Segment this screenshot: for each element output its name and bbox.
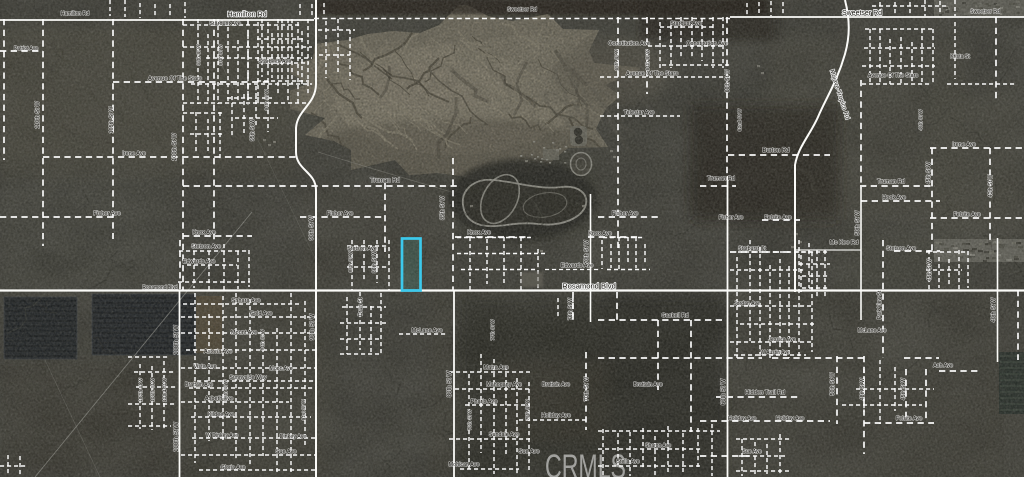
svg-text:Sue Ave: Sue Ave — [519, 449, 540, 455]
svg-text:40th St W: 40th St W — [988, 175, 994, 198]
svg-text:Hamilton Rd: Hamilton Rd — [61, 11, 90, 17]
svg-text:Sharon Ave: Sharon Ave — [645, 443, 671, 449]
svg-text:Knox Ave: Knox Ave — [192, 230, 216, 236]
svg-text:Sahara Ave: Sahara Ave — [232, 298, 261, 304]
svg-text:105th St W: 105th St W — [150, 378, 156, 402]
svg-text:48th St W: 48th St W — [860, 378, 866, 400]
svg-text:107th St W: 107th St W — [138, 378, 144, 402]
svg-text:Rosamond Blvd: Rosamond Blvd — [142, 285, 178, 291]
svg-text:W Austin Ave: W Austin Ave — [760, 350, 790, 356]
svg-text:Astoria Ave: Astoria Ave — [204, 349, 232, 355]
svg-text:65th St W: 65th St W — [614, 49, 620, 71]
svg-text:Sue Ave: Sue Ave — [742, 449, 761, 455]
svg-text:Krista St: Krista St — [950, 54, 970, 60]
svg-text:77th St W: 77th St W — [490, 319, 496, 341]
svg-text:Hamilton Rd: Hamilton Rd — [227, 10, 267, 19]
svg-text:45th St W: 45th St W — [901, 378, 907, 400]
svg-text:Stardust Ave: Stardust Ave — [670, 21, 702, 27]
svg-text:60th St W: 60th St W — [725, 70, 731, 93]
svg-text:Park View St: Park View St — [877, 290, 883, 319]
svg-text:Patriot Ave: Patriot Ave — [14, 46, 38, 52]
svg-text:Sunnyside Way: Sunnyside Way — [229, 375, 267, 381]
svg-text:46th St W: 46th St W — [918, 109, 924, 131]
svg-text:Gold Ave: Gold Ave — [250, 311, 273, 317]
svg-text:91st St W: 91st St W — [301, 399, 307, 420]
svg-text:Irene Ave: Irene Ave — [122, 151, 146, 157]
svg-text:Brattain Ave: Brattain Ave — [634, 382, 663, 388]
svg-text:Truman Rd: Truman Rd — [877, 179, 905, 185]
svg-text:McLane Ave: McLane Ave — [412, 328, 443, 334]
svg-text:Sweetser Rd: Sweetser Rd — [842, 10, 882, 17]
svg-text:Truman Rd: Truman Rd — [707, 176, 735, 182]
svg-text:Rosamond Blvd: Rosamond Blvd — [562, 282, 616, 291]
svg-text:100th St W: 100th St W — [172, 132, 178, 160]
svg-text:Matra Ave: Matra Ave — [483, 365, 508, 371]
svg-text:W Dinkey Ave: W Dinkey Ave — [206, 433, 238, 439]
svg-text:86th St W: 86th St W — [372, 251, 378, 273]
svg-text:110th St W: 110th St W — [35, 101, 41, 129]
svg-text:50th St W: 50th St W — [855, 210, 861, 235]
svg-text:Knox Ave: Knox Ave — [588, 231, 612, 237]
svg-text:Sundale Ave: Sundale Ave — [489, 432, 519, 438]
svg-text:Avenue Of The Stars: Avenue Of The Stars — [148, 76, 202, 82]
svg-text:Kildee Ave: Kildee Ave — [208, 412, 234, 418]
svg-text:Telestar Ave: Telestar Ave — [624, 110, 654, 116]
svg-text:Starburst Ct: Starburst Ct — [738, 246, 766, 252]
svg-text:Sweetser Rd: Sweetser Rd — [507, 7, 537, 13]
svg-text:62nd St W: 62nd St W — [737, 108, 743, 131]
svg-text:90th St W: 90th St W — [309, 215, 315, 240]
svg-text:64th St W: 64th St W — [645, 49, 651, 71]
svg-text:Felsite Ave: Felsite Ave — [953, 212, 980, 218]
svg-text:Moon Ave: Moon Ave — [270, 366, 293, 372]
svg-text:Sue Ave: Sue Ave — [276, 449, 297, 455]
svg-text:Avenue Of The Stars: Avenue Of The Stars — [626, 71, 678, 77]
svg-text:Felsite Ave: Felsite Ave — [764, 215, 791, 221]
svg-text:Holiday Ave: Holiday Ave — [776, 416, 804, 422]
svg-text:McLane Ave: McLane Ave — [858, 328, 887, 334]
svg-text:70th St W: 70th St W — [584, 376, 590, 401]
svg-text:Burton Rd: Burton Rd — [762, 148, 789, 154]
svg-text:Fisher Ave: Fisher Ave — [93, 211, 120, 217]
svg-text:Fisher Ave: Fisher Ave — [612, 211, 638, 217]
svg-text:100th St W: 100th St W — [174, 422, 180, 452]
svg-text:Pharis Ave: Pharis Ave — [471, 399, 498, 405]
svg-text:98th St W: 98th St W — [196, 44, 202, 66]
svg-text:50th St W: 50th St W — [830, 373, 836, 396]
svg-text:60th St W: 60th St W — [721, 378, 727, 405]
svg-text:79th St W: 79th St W — [467, 409, 473, 431]
svg-text:Constitution Ave: Constitution Ave — [686, 41, 728, 47]
svg-text:Ash Ave: Ash Ave — [933, 363, 953, 369]
svg-text:Mount Ave: Mount Ave — [231, 330, 257, 336]
svg-text:103rd St W: 103rd St W — [162, 378, 168, 402]
svg-text:CRMLS: CRMLS — [545, 448, 626, 477]
svg-text:75th St W: 75th St W — [525, 399, 531, 421]
svg-text:95th St W: 95th St W — [250, 119, 256, 141]
svg-text:Edwards Ave: Edwards Ave — [183, 259, 216, 265]
svg-text:Truman Rd: Truman Rd — [370, 178, 400, 184]
svg-text:Holiday Ave: Holiday Ave — [541, 413, 570, 419]
svg-text:Brattain Ave: Brattain Ave — [542, 382, 570, 388]
svg-text:Stardust Ave: Stardust Ave — [209, 21, 241, 27]
svg-text:Starbeck Ave: Starbeck Ave — [259, 59, 292, 65]
svg-text:45th St W: 45th St W — [927, 259, 933, 281]
svg-text:88th St W: 88th St W — [348, 251, 354, 273]
svg-text:Sweetser Rd: Sweetser Rd — [970, 9, 1000, 15]
svg-text:Irene Ave: Irene Ave — [952, 142, 976, 148]
svg-text:100th St W: 100th St W — [174, 325, 180, 355]
svg-text:Holiday Ave: Holiday Ave — [728, 416, 756, 422]
svg-text:76th St W: 76th St W — [568, 298, 574, 320]
svg-text:Gaskell Rd: Gaskell Rd — [661, 313, 688, 319]
svg-text:Knox Ave: Knox Ave — [467, 230, 491, 236]
svg-text:Stetson Ave: Stetson Ave — [886, 246, 916, 252]
svg-text:Hidden Trail Rd: Hidden Trail Rd — [745, 390, 785, 396]
svg-text:Hook Ave: Hook Ave — [882, 195, 906, 201]
svg-text:Felsite Ave: Felsite Ave — [896, 416, 922, 422]
svg-text:85th St W: 85th St W — [440, 195, 446, 220]
svg-text:70th St W: 70th St W — [584, 239, 590, 264]
svg-text:Fisher Ave: Fisher Ave — [327, 211, 353, 217]
svg-text:105th St W: 105th St W — [109, 106, 115, 134]
svg-text:80th St W: 80th St W — [447, 370, 453, 397]
svg-text:Mohican Ave: Mohican Ave — [449, 462, 480, 468]
svg-text:Gloria Ave: Gloria Ave — [221, 465, 246, 471]
svg-text:Drain St: Drain St — [358, 297, 364, 316]
svg-text:Jordan Ave: Jordan Ave — [734, 301, 760, 307]
svg-text:Mahogany Ave: Mahogany Ave — [486, 382, 522, 388]
svg-text:Jessica Ave: Jessica Ave — [768, 337, 795, 343]
svg-text:Constitution Ave: Constitution Ave — [608, 41, 650, 47]
svg-text:Stetson Ave: Stetson Ave — [191, 244, 221, 250]
svg-text:Vista Ave: Vista Ave — [193, 364, 216, 370]
svg-text:96th St W: 96th St W — [223, 379, 229, 401]
svg-text:Brattain Ave: Brattain Ave — [185, 382, 213, 388]
svg-text:94th St W: 94th St W — [264, 89, 270, 111]
svg-text:Avenue Of The Stars: Avenue Of The Stars — [868, 73, 918, 79]
svg-text:Fisher Ave: Fisher Ave — [719, 215, 744, 221]
svg-text:40th St W: 40th St W — [991, 297, 997, 322]
svg-text:97th St W: 97th St W — [218, 44, 224, 66]
svg-text:Mc Kee Rd: Mc Kee Rd — [830, 240, 859, 246]
svg-text:Dinkey Ave: Dinkey Ave — [280, 434, 307, 440]
svg-text:45th St W: 45th St W — [926, 162, 932, 184]
svg-text:94th St W: 94th St W — [260, 329, 266, 351]
svg-text:90th St W: 90th St W — [310, 313, 316, 340]
